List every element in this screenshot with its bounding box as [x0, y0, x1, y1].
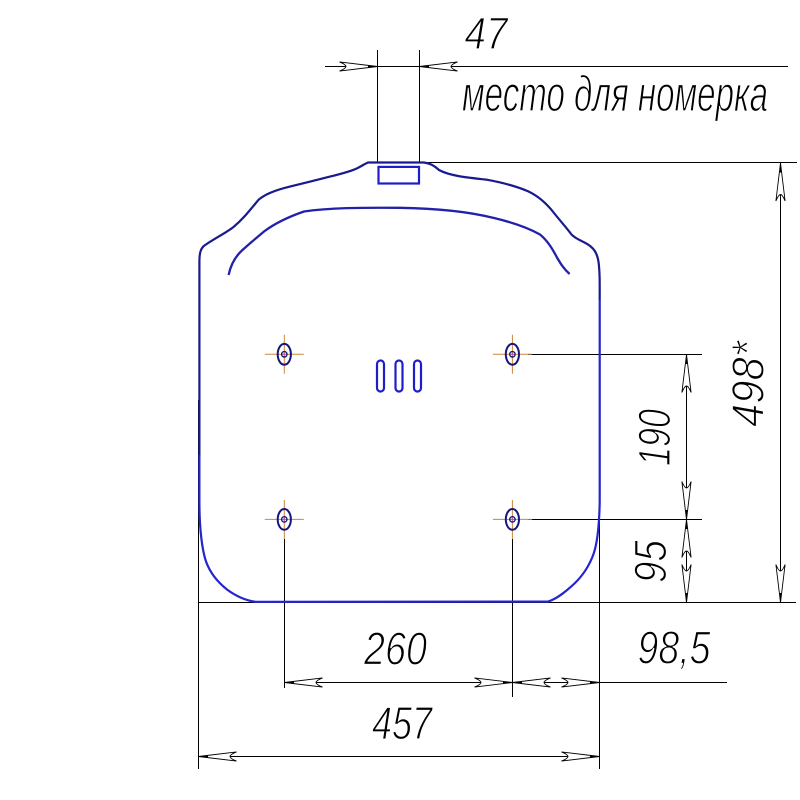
svg-text:47: 47	[465, 8, 510, 59]
svg-text:98,5: 98,5	[638, 622, 711, 674]
svg-text:457: 457	[372, 697, 433, 749]
svg-text:место для номерка: место для номерка	[462, 66, 768, 122]
svg-text:498*: 498*	[723, 340, 774, 427]
svg-text:260: 260	[363, 623, 427, 675]
svg-text:190: 190	[629, 409, 680, 466]
svg-text:95: 95	[625, 539, 676, 583]
